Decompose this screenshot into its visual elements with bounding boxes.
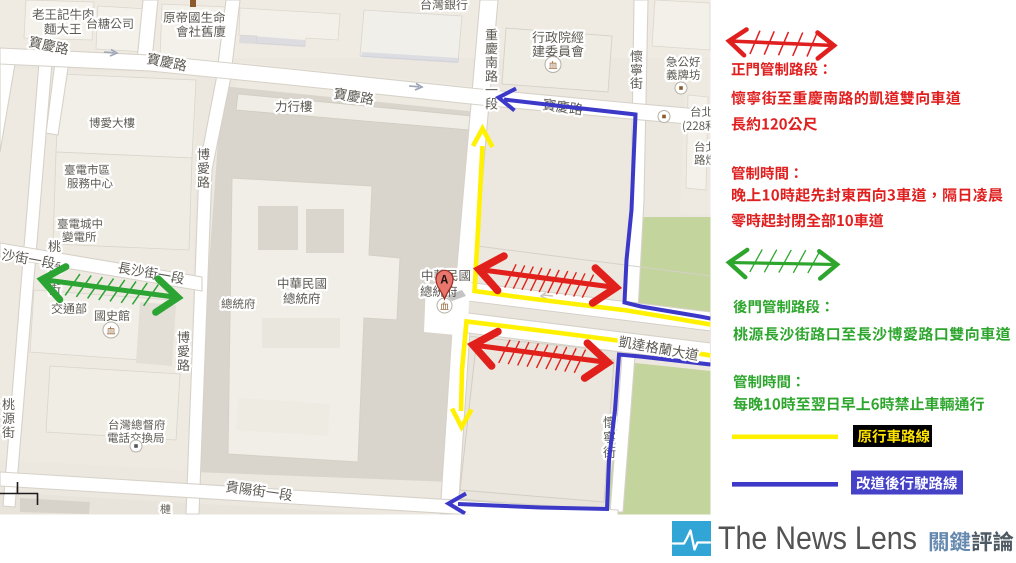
svg-text:The News Lens: The News Lens: [718, 520, 917, 556]
